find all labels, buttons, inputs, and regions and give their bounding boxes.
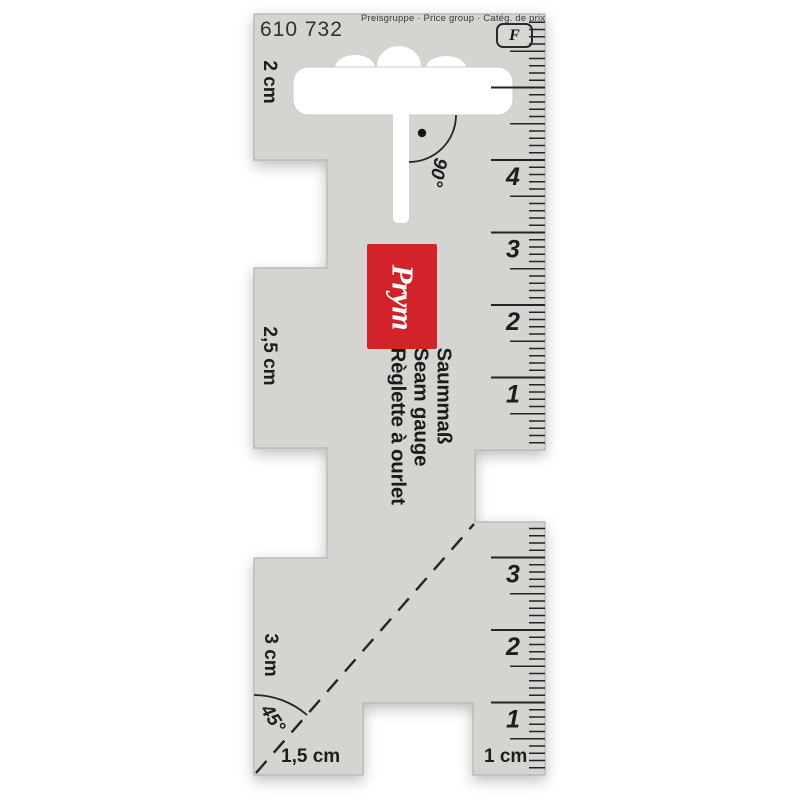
ruler-number: 1 (506, 381, 520, 409)
ruler-number: 4 (505, 163, 520, 191)
ruler-number: 2 (505, 633, 520, 661)
gauge-slit-cutout (393, 100, 409, 223)
product-name-de: Saummaß (433, 348, 456, 563)
brand-logo-text: Prym (384, 264, 420, 329)
brand-logo: Prym (367, 244, 437, 349)
ruler-number: 2 (505, 308, 520, 336)
ruler-number: 3 (506, 236, 520, 264)
measure-label-2cm: 2 cm (258, 47, 280, 117)
product-name-en: Seam gauge (410, 348, 433, 563)
measure-label-2-5cm: 2,5 cm (258, 311, 280, 401)
product-name-block: Saummaß Seam gauge Règlette à ourlet (386, 348, 456, 563)
ruler-number: 3 (506, 561, 520, 589)
measure-label-3cm: 3 cm (259, 620, 281, 690)
ruler-number: 1 (506, 706, 520, 734)
price-group-badge: F (496, 23, 533, 48)
article-number: 610 732 (260, 18, 343, 42)
measure-label-1cm: 1 cm (484, 746, 527, 768)
pivot-dot (418, 129, 426, 137)
product-photo: 1234 123 610 732 Preisgruppe · Price gro… (0, 0, 800, 800)
product-name-fr: Règlette à ourlet (387, 348, 410, 563)
measure-label-1-5cm: 1,5 cm (281, 746, 340, 768)
